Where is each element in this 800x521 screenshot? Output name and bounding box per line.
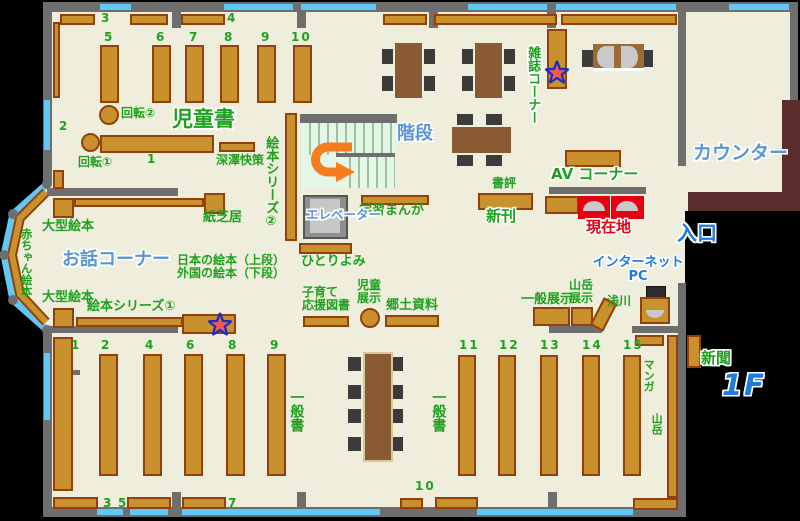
pillar	[297, 492, 306, 507]
bookshelf-1	[100, 135, 214, 153]
mountain-books-shelf	[667, 335, 678, 498]
star-marker-icon	[545, 61, 569, 85]
bookshelf-10-general	[435, 497, 478, 509]
label-picture-book-series1: 絵本シリーズ①	[87, 300, 175, 314]
bookshelf-1-general	[53, 337, 73, 491]
window	[477, 509, 633, 515]
picture-book-series2-shelf	[285, 113, 297, 241]
large-picture-book-shelf	[53, 308, 74, 328]
label-hitoriyomi: ひとりよみ	[301, 255, 366, 269]
chair	[382, 49, 393, 64]
bookshelf-5-general	[127, 497, 171, 509]
bookshelf	[60, 14, 95, 25]
shelf-number: 3	[103, 497, 111, 510]
area-label-internet-pc: インターネット PC	[578, 256, 698, 285]
label-mountain-books: 山岳	[650, 413, 662, 435]
chair	[424, 76, 435, 91]
bookshelf-8	[220, 45, 239, 103]
bookshelf-3-general	[53, 497, 98, 509]
shelf-number: 9	[261, 31, 269, 44]
rotating-rack-1	[81, 133, 100, 152]
shelf-number: 8	[224, 31, 232, 44]
bookshelf-9	[257, 45, 276, 103]
window	[44, 100, 50, 150]
window	[182, 509, 380, 515]
parenting-books-shelf	[303, 316, 349, 327]
kamishibai-shelf	[74, 198, 204, 207]
area-label-stairs: 階段	[397, 124, 433, 144]
shelf-number: 3	[101, 12, 109, 25]
area-label-children-books: 児童書	[172, 108, 235, 131]
library-floor-map: 3 4 5 6 7 8 9 10 2 1 1 2 4 6 8 9 3 5 7 1…	[0, 0, 800, 521]
label-mountain-exhibit: 山岳 展示	[569, 279, 593, 305]
label-children-exhibit: 児童 展示	[357, 279, 381, 305]
chair	[457, 114, 473, 125]
bookshelf-7	[185, 45, 204, 103]
chair	[504, 76, 515, 91]
reading-table	[452, 127, 511, 153]
window	[301, 4, 376, 10]
chair	[486, 114, 502, 125]
label-general-books: 一般書	[288, 390, 303, 432]
chair	[462, 49, 473, 64]
label-baby-picture-books: 赤ちゃん絵本	[20, 228, 33, 297]
area-label-elevator: エレベーター	[306, 208, 381, 222]
shelf-number: 6	[186, 339, 194, 352]
reading-table-long	[363, 352, 393, 462]
window	[100, 4, 131, 10]
label-book-review: 書評	[492, 177, 516, 190]
sofa-seat	[597, 46, 614, 68]
label-new-books: 新刊	[486, 208, 516, 225]
bookshelf	[181, 14, 225, 25]
shelf-number: 8	[228, 339, 236, 352]
pillar	[172, 492, 181, 507]
children-exhibit-stand	[360, 308, 380, 328]
chair	[457, 155, 473, 166]
bookshelf-4-general	[143, 354, 162, 476]
general-exhibit-shelf	[533, 307, 570, 326]
bookshelf-6	[152, 45, 171, 103]
label-fukazawa: 深澤快策	[216, 154, 264, 167]
star-marker-icon	[208, 313, 232, 337]
wall-right-upper	[678, 12, 686, 166]
bookshelf-14	[582, 355, 600, 476]
wall-right-lower	[678, 283, 686, 510]
pillar	[548, 492, 557, 507]
chair	[504, 49, 515, 64]
label-japanese-foreign-picture-books: 日本の絵本（上段） 外国の絵本（下段）	[177, 254, 285, 280]
shelf-number: 2	[59, 120, 67, 133]
shelf-number: 7	[189, 31, 197, 44]
bookshelf	[434, 14, 557, 25]
pillar	[297, 12, 306, 28]
bookshelf-2-general	[99, 354, 118, 476]
label-newspaper: 新聞	[701, 350, 731, 367]
label-picture-book-series2: 絵本シリーズ②	[263, 136, 277, 229]
shelf-number: 14	[582, 339, 603, 352]
label-local-materials: 郷土資料	[386, 299, 438, 313]
window	[224, 4, 293, 10]
area-label-counter: カウンター	[693, 143, 788, 164]
bookshelf-7-general	[182, 497, 226, 509]
shelf-number: 1	[147, 153, 155, 166]
bookshelf-2	[53, 22, 60, 98]
bookshelf-9-general	[267, 354, 286, 476]
bookshelf-15	[623, 355, 641, 476]
label-manga: マンガ	[642, 359, 654, 392]
bookshelf	[561, 14, 677, 25]
area-label-story-corner: お話コーナー	[62, 250, 170, 270]
bookshelf-13	[540, 355, 558, 476]
bookshelf	[130, 14, 168, 25]
gate-rail	[549, 187, 646, 194]
chair	[348, 357, 361, 371]
large-picture-book-shelf	[53, 198, 74, 218]
chair	[348, 409, 361, 423]
pillar	[172, 12, 181, 28]
picture-book-series1-shelf	[76, 317, 183, 327]
hitoriyomi-shelf	[299, 243, 352, 254]
fukazawa-shelf	[219, 142, 255, 152]
shelf-number: 5	[104, 31, 112, 44]
window	[556, 4, 676, 10]
sofa-seat	[621, 46, 638, 68]
local-materials-shelf	[385, 315, 439, 327]
chair	[462, 76, 473, 91]
current-location-label: 現在地	[586, 219, 631, 236]
window	[729, 4, 789, 10]
rotating-rack-2	[99, 105, 119, 125]
shelf-number: 9	[270, 339, 278, 352]
shelf-number: 4	[145, 339, 153, 352]
chair	[382, 76, 393, 91]
bookshelf	[53, 170, 64, 189]
shelf-number: 10	[415, 480, 436, 493]
bookshelf	[400, 498, 423, 509]
bookshelf-8-general	[226, 354, 245, 476]
label-parenting-books: 子育て 応援図書	[302, 286, 350, 312]
shelf-number: 12	[499, 339, 520, 352]
shelf-number: 7	[228, 497, 236, 510]
gate-side-shelf	[545, 196, 579, 214]
area-label-entrance: 入口	[677, 222, 717, 244]
wall-stub	[632, 326, 678, 333]
stairs-direction-arrow-icon	[300, 130, 360, 188]
wall-far-right	[790, 3, 798, 100]
reading-table	[475, 43, 502, 98]
label-kamishibai: 紙芝居	[203, 211, 242, 225]
bookshelf-11	[458, 355, 476, 476]
shelf-number: 4	[227, 12, 235, 25]
shelf-number: 13	[540, 339, 561, 352]
shelf-number: 6	[156, 31, 164, 44]
bookshelf-12	[498, 355, 516, 476]
chair	[348, 437, 361, 451]
sofa-armrest	[582, 50, 593, 67]
sofa-armrest	[644, 50, 653, 67]
bookshelf-6-general	[184, 354, 203, 476]
label-rotating-rack-1: 回転①	[78, 156, 112, 169]
shelf-number: 10	[291, 31, 312, 44]
window	[130, 509, 168, 515]
shelf-number: 11	[459, 339, 480, 352]
floor-number-label: 1F	[722, 370, 766, 402]
window	[44, 353, 50, 420]
counter-desk	[688, 192, 800, 211]
label-general-exhibit: 一般展示	[521, 293, 573, 307]
label-asakawa: 浅川	[607, 295, 631, 308]
shelf-number: 15	[623, 339, 644, 352]
bookshelf	[383, 14, 427, 25]
wall-left-upper	[43, 2, 52, 184]
chair	[486, 155, 502, 166]
bookshelf	[633, 498, 678, 510]
area-label-av-corner: AV コーナー	[551, 166, 638, 183]
window	[468, 4, 547, 10]
shelf-number: 1	[71, 339, 79, 352]
reading-table	[395, 43, 422, 98]
stairs-wall	[300, 114, 397, 123]
chair	[348, 385, 361, 399]
shelf-number: 2	[101, 339, 109, 352]
wall-top	[43, 2, 798, 12]
bookshelf-10	[293, 45, 312, 103]
label-general-books: 一般書	[430, 390, 445, 432]
label-large-picture-books: 大型絵本	[42, 220, 94, 234]
newspaper-rack	[687, 335, 701, 368]
label-rotating-rack-2: 回転②	[121, 107, 155, 120]
bookshelf-5	[100, 45, 119, 103]
area-label-magazine-corner: 雑誌コーナー	[525, 46, 539, 124]
chair	[424, 49, 435, 64]
wall-divider-upper	[47, 188, 178, 196]
shelf-number: 5	[118, 497, 126, 510]
